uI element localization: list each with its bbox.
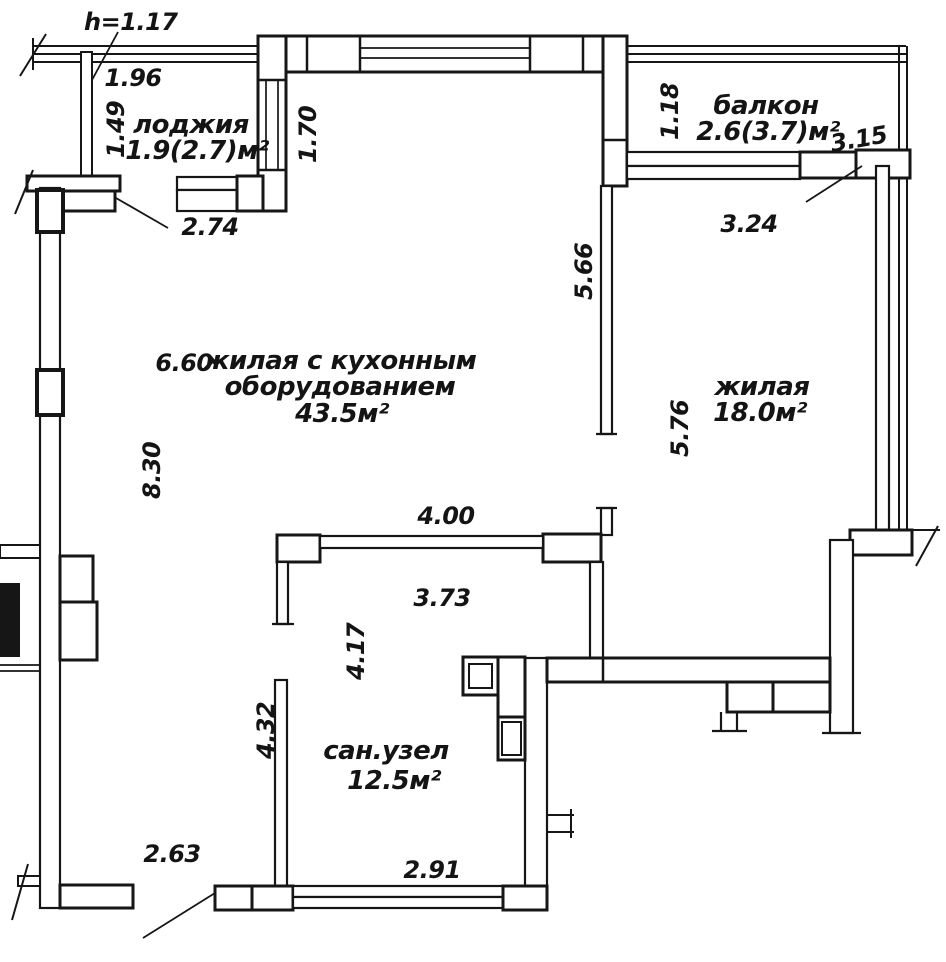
interior-pier	[60, 602, 97, 660]
dim-bathroom-left-upper: 4.17	[342, 622, 370, 681]
room-area-bathroom: 12.5м²	[347, 766, 442, 796]
room-area-living: 18.0м²	[713, 398, 808, 428]
wall-pier	[37, 190, 63, 232]
dim-living-depth: 5.76	[666, 400, 694, 457]
loggia-window-sill	[177, 177, 237, 190]
dim-opening-width: 4.00	[416, 502, 474, 530]
balcony-bottom-wall	[627, 150, 910, 179]
balcony-left-wall	[603, 36, 627, 186]
dim-bathroom-left-lower: 4.32	[252, 702, 280, 760]
dim-partition-upper: 5.66	[570, 243, 598, 300]
dim-balcony-bottom: 3.24	[720, 210, 777, 238]
bathroom-top-lintel	[320, 536, 543, 548]
room-area-living-kitchen: 43.5м²	[294, 399, 390, 429]
floor-plan-sheet: h=1.17 1.96 1.49 1.70 2.74 1.18 3.15 3.2…	[0, 0, 946, 962]
room-label-living-kitchen-2: оборудованием	[225, 372, 456, 402]
ceiling-height-note: h=1.17	[84, 8, 178, 36]
dim-living-kitchen-depth: 8.30	[138, 442, 166, 499]
room-area-loggia: 1.9(2.7)м²	[125, 136, 270, 166]
dim-loggia-bottom: 2.74	[181, 213, 238, 241]
dim-bathroom-bottom: 2.91	[403, 856, 460, 884]
dim-loggia-right: 1.70	[294, 106, 322, 163]
wall-pier	[37, 370, 63, 415]
dim-balcony-left: 1.18	[656, 83, 684, 140]
room-area-balcony: 2.6(3.7)м²	[696, 117, 841, 147]
dim-loggia-top: 1.96	[104, 64, 161, 92]
dim-bathroom-top: 3.73	[413, 584, 470, 612]
floor-plan-drawing: h=1.17 1.96 1.49 1.70 2.74 1.18 3.15 3.2…	[0, 0, 946, 962]
loggia-parapet-wall	[81, 52, 92, 182]
exterior-shaft-block	[0, 583, 20, 657]
interior-pier	[60, 556, 93, 602]
room-label-bathroom: сан.узел	[323, 736, 449, 766]
top-exterior-wall	[258, 36, 627, 72]
dim-bottom-left: 2.63	[143, 840, 200, 868]
